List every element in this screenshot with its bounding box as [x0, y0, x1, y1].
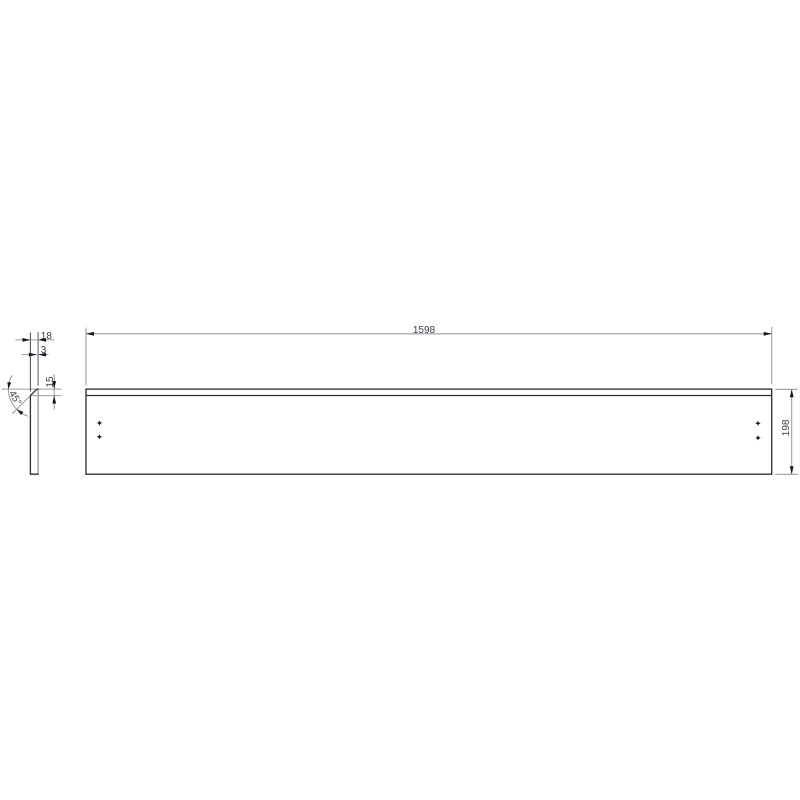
svg-text:1598: 1598 [413, 325, 436, 336]
svg-text:15: 15 [45, 376, 56, 388]
svg-text:3: 3 [41, 345, 47, 356]
svg-text:18: 18 [41, 331, 53, 342]
svg-text:198: 198 [781, 419, 792, 436]
